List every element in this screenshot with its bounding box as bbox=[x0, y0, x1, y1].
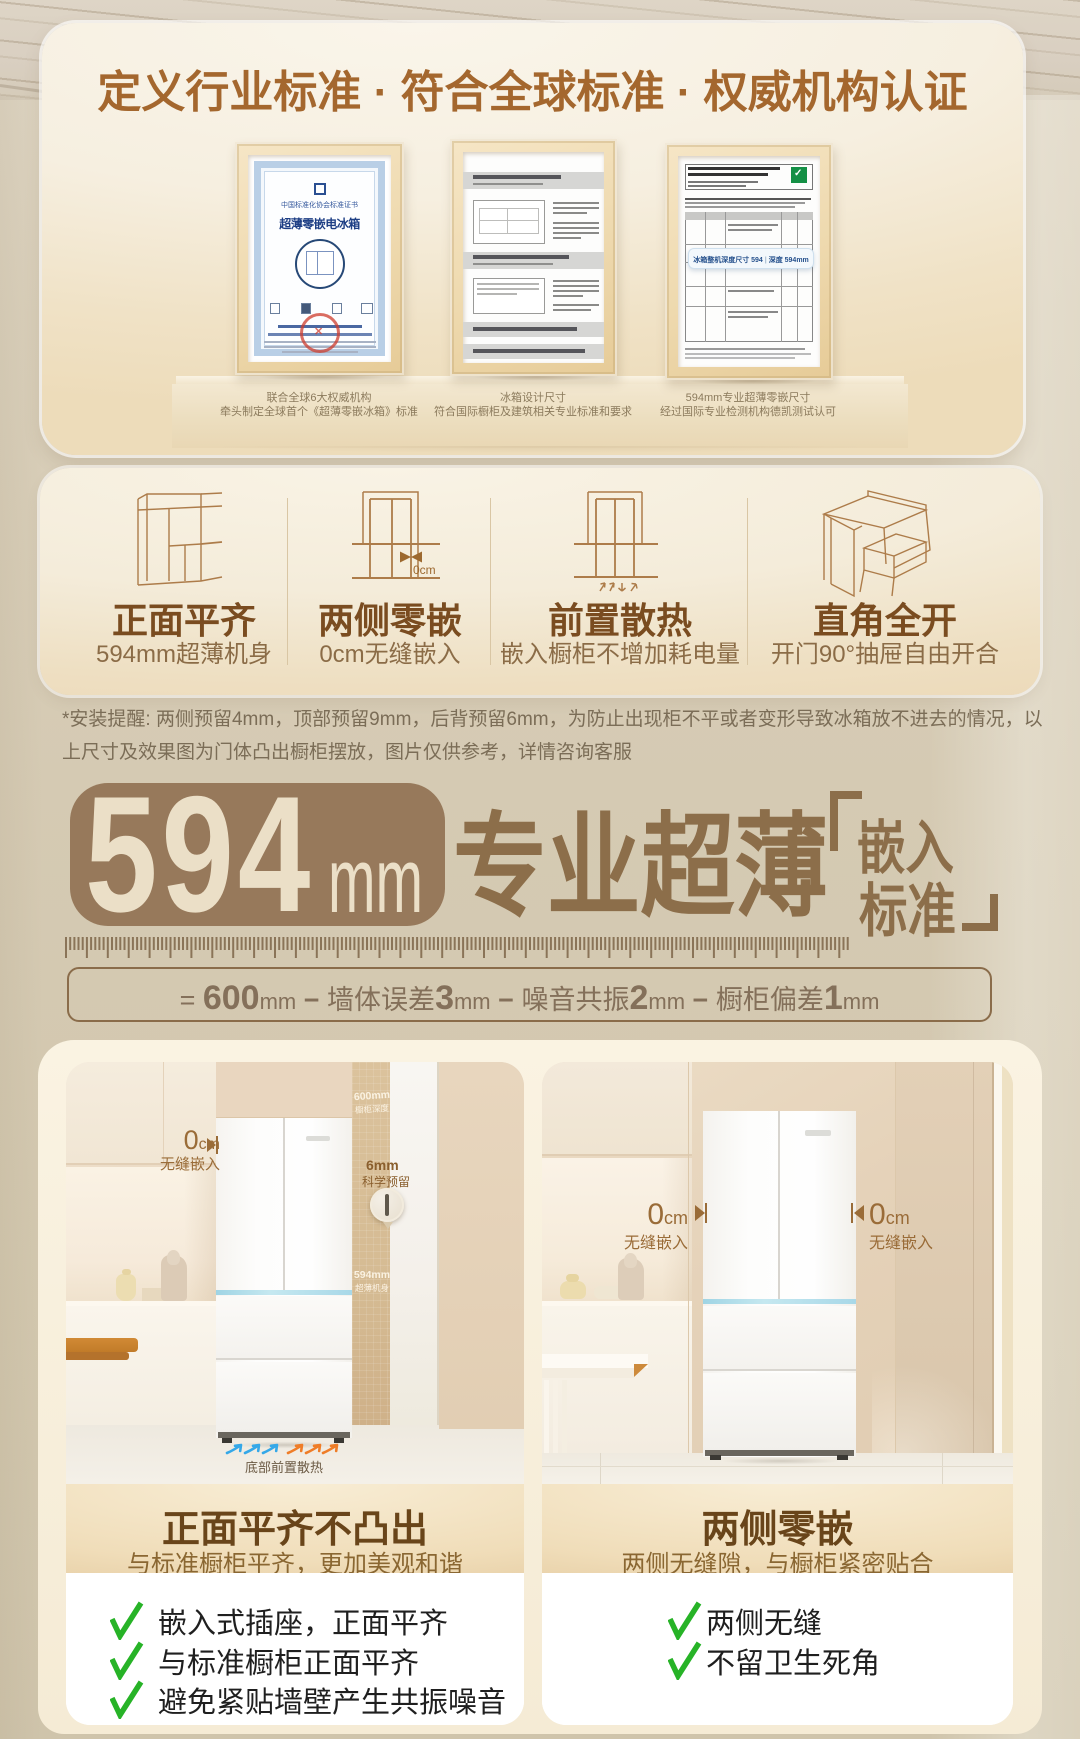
svg-text:0cm: 0cm bbox=[413, 563, 436, 577]
